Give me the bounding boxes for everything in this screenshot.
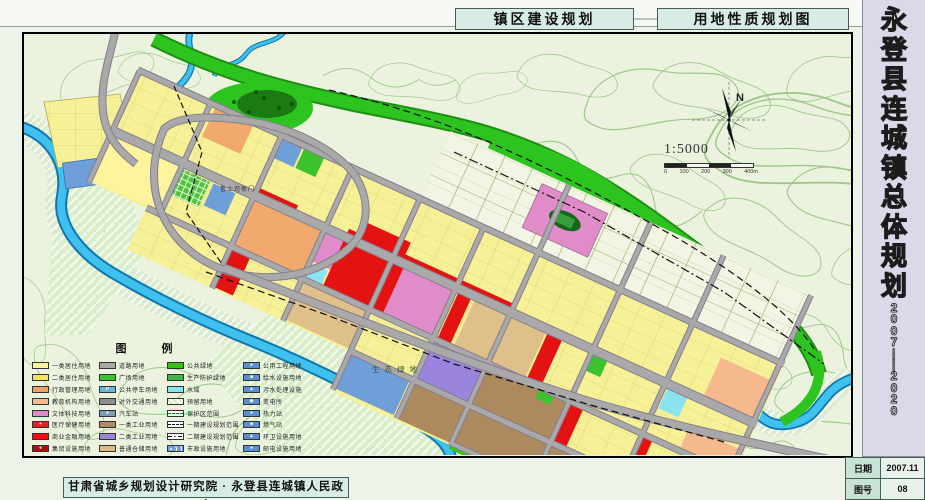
legend-item: ●汽车站 bbox=[99, 407, 167, 419]
legend-swatch bbox=[32, 362, 49, 369]
legend-label: 文体科技用地 bbox=[52, 409, 91, 418]
legend-item: 生产防护绿地 bbox=[167, 372, 243, 384]
legend-item: ▲环卫设施用地 bbox=[243, 431, 329, 443]
legend-label: 行政管理用地 bbox=[52, 385, 91, 394]
legend-item: 二期建设规划范围 bbox=[167, 431, 243, 443]
sidebar-char: 镇 bbox=[863, 154, 925, 184]
scale-tick: 100 bbox=[679, 169, 688, 175]
legend-item: ●集贸设施用地 bbox=[32, 443, 99, 455]
sidebar-char: 永 bbox=[863, 6, 925, 36]
scale-tick: 200 bbox=[701, 169, 710, 175]
legend-swatch bbox=[32, 398, 49, 405]
legend-item: 保护区范围 bbox=[167, 407, 243, 419]
legend-label: 公用工程用地 bbox=[263, 361, 302, 370]
legend-swatch bbox=[99, 433, 116, 440]
legend-label: 公共绿地 bbox=[187, 361, 213, 370]
legend-label: 村镇建设用地范围 bbox=[263, 456, 315, 458]
legend-swatch bbox=[167, 386, 184, 393]
legend-label: 水域 bbox=[187, 385, 200, 394]
legend-swatch: ● bbox=[32, 445, 49, 452]
legend-item: ▲污水处理设施 bbox=[243, 384, 329, 396]
legend-swatch bbox=[243, 457, 260, 458]
eco-green-label: 生态绿地 bbox=[372, 364, 422, 375]
title-connector bbox=[632, 18, 657, 20]
legend-swatch bbox=[99, 374, 116, 381]
legend-swatch bbox=[167, 362, 184, 369]
legend-swatch: ● bbox=[243, 410, 260, 417]
sidebar-char: — bbox=[888, 335, 899, 397]
legend-swatch: ● bbox=[99, 410, 116, 417]
sidebar-period: 2007——2020 bbox=[863, 303, 925, 417]
sidebar-char: 城 bbox=[863, 124, 925, 154]
legend-title: 图 例 bbox=[62, 340, 242, 356]
legend-item: 村镇建设用地范围 bbox=[243, 454, 329, 458]
legend-label: 教育机构用地 bbox=[52, 397, 91, 406]
legend-item: ●公用工程用地 bbox=[243, 360, 329, 372]
scale: 1:5000 0100200300400m bbox=[664, 142, 774, 175]
legend-swatch: + bbox=[32, 421, 49, 428]
legend-swatch bbox=[32, 386, 49, 393]
legend-swatch: ■ bbox=[243, 421, 260, 428]
legend-item: ●热力站 bbox=[243, 407, 329, 419]
legend-label: 一类居住用地 bbox=[52, 361, 91, 370]
legend-column: 一类居住用地二类居住用地行政管理用地教育机构用地文体科技用地+医疗保健用地商业金… bbox=[32, 360, 99, 458]
legend-label: 广场用地 bbox=[119, 373, 145, 382]
sidebar-char: 总 bbox=[863, 183, 925, 213]
sidebar-char: 0 bbox=[863, 406, 925, 417]
legend-label: 变电所 bbox=[263, 397, 283, 406]
scale-tick: 300 bbox=[723, 169, 732, 175]
legend-swatch bbox=[167, 433, 184, 440]
legend-label: 保护区范围 bbox=[187, 409, 220, 418]
sidebar-char: 规 bbox=[863, 242, 925, 272]
legend-label: 集贸设施用地 bbox=[52, 444, 91, 453]
landmark-label: 鲁土司衙门 bbox=[220, 184, 255, 193]
legend-swatch bbox=[167, 421, 184, 428]
legend-item: 教育机构用地 bbox=[32, 395, 99, 407]
sidebar-char: 登 bbox=[863, 36, 925, 66]
legend-item: 普通仓储用地 bbox=[99, 443, 167, 455]
legend-item: 预留用地 bbox=[167, 395, 243, 407]
legend-swatch: ▲ bbox=[243, 386, 260, 393]
legend-item: 道路用地 bbox=[99, 360, 167, 372]
scale-bar bbox=[664, 163, 754, 168]
legend-swatch: ◆ bbox=[243, 398, 260, 405]
legend-item: 公共绿地 bbox=[167, 360, 243, 372]
compass-north-label: N bbox=[736, 92, 744, 104]
legend-label: 燃气站 bbox=[263, 420, 283, 429]
scale-tick: 0 bbox=[664, 169, 667, 175]
legend-item: 一类居住用地 bbox=[32, 360, 99, 372]
legend-label: 一类工业用地 bbox=[119, 420, 158, 429]
legend-item: 一类工业用地 bbox=[99, 419, 167, 431]
legend-item: 文体科技用地 bbox=[32, 407, 99, 419]
scale-tick: 400m bbox=[744, 169, 758, 175]
legend-label: 生产防护绿地 bbox=[187, 373, 226, 382]
sidebar-char: 体 bbox=[863, 213, 925, 243]
legend-label: 道路用地 bbox=[119, 361, 145, 370]
legend-label: 二类居住用地 bbox=[52, 373, 91, 382]
legend-item: 对外交通用地 bbox=[99, 395, 167, 407]
legend-swatch bbox=[32, 433, 49, 440]
legend-label: 普通仓储用地 bbox=[119, 444, 158, 453]
legend-swatch bbox=[32, 410, 49, 417]
legend-swatch bbox=[167, 398, 184, 405]
map-canvas: N 1:5000 0100200300400m 生态绿地 鲁土司衙门 图 例 一… bbox=[22, 32, 853, 458]
legend: 图 例 一类居住用地二类居住用地行政管理用地教育机构用地文体科技用地+医疗保健用… bbox=[32, 340, 332, 458]
legend-columns: 一类居住用地二类居住用地行政管理用地教育机构用地文体科技用地+医疗保健用地商业金… bbox=[32, 360, 332, 458]
legend-label: 一期建设规划范围 bbox=[187, 420, 239, 429]
date-value: 2007.11 bbox=[881, 458, 925, 479]
sheet-number-value: 08 bbox=[881, 479, 925, 500]
legend-item: 广场用地 bbox=[99, 372, 167, 384]
sidebar-char: 连 bbox=[863, 95, 925, 125]
legend-swatch bbox=[99, 398, 116, 405]
legend-swatch bbox=[167, 445, 184, 452]
sidebar-char: 划 bbox=[863, 272, 925, 302]
scale-ratio: 1:5000 bbox=[664, 142, 774, 158]
legend-label: 医疗保健用地 bbox=[52, 420, 91, 429]
sheet-number-label: 图号 bbox=[846, 479, 881, 500]
legend-swatch bbox=[99, 362, 116, 369]
legend-item: ■燃气站 bbox=[243, 419, 329, 431]
legend-label: 公共停车场地 bbox=[119, 385, 158, 394]
legend-swatch bbox=[167, 410, 184, 417]
title-right: 用地性质规划图 bbox=[657, 8, 849, 30]
title-left: 镇区建设规划 bbox=[455, 8, 634, 30]
legend-label: 商业金融用地 bbox=[52, 432, 91, 441]
legend-item: 水域 bbox=[167, 384, 243, 396]
legend-label: 对外交通用地 bbox=[119, 397, 158, 406]
legend-label: 汽车站 bbox=[119, 409, 139, 418]
plan-sheet: 镇区建设规划 用地性质规划图 bbox=[0, 0, 925, 500]
sidebar-title: 永登县连城镇总体规划 bbox=[863, 6, 925, 301]
legend-item: P公共停车场地 bbox=[99, 384, 167, 396]
legend-swatch: ● bbox=[243, 445, 260, 452]
legend-item: 一期建设规划范围 bbox=[167, 419, 243, 431]
legend-item: ◆变电所 bbox=[243, 395, 329, 407]
legend-column: 道路用地广场用地P公共停车场地对外交通用地●汽车站一类工业用地二类工业用地普通仓… bbox=[99, 360, 167, 458]
legend-label: 环卫设施用地 bbox=[263, 432, 302, 441]
sidebar: 永登县连城镇总体规划 2007——2020 bbox=[862, 0, 925, 457]
legend-label: 二期建设规划范围 bbox=[187, 432, 239, 441]
footer-credit: 甘肃省城乡规划设计研究院 · 永登县连城镇人民政府 bbox=[63, 477, 349, 498]
legend-swatch bbox=[99, 445, 116, 452]
legend-label: 预留用地 bbox=[187, 397, 213, 406]
legend-swatch: P bbox=[99, 386, 116, 393]
legend-swatch bbox=[167, 374, 184, 381]
legend-label: 邮电设施用地 bbox=[263, 444, 302, 453]
legend-swatch bbox=[32, 374, 49, 381]
legend-item: ●邮电设施用地 bbox=[243, 443, 329, 455]
scale-ticks: 0100200300400m bbox=[664, 169, 758, 175]
date-label: 日期 bbox=[846, 458, 881, 479]
sheet-info-table: 日期 2007.11 图号 08 bbox=[845, 457, 925, 500]
legend-item: 二类居住用地 bbox=[32, 372, 99, 384]
legend-swatch bbox=[99, 421, 116, 428]
legend-item: 商业金融用地 bbox=[32, 431, 99, 443]
legend-item: ■给水设施用地 bbox=[243, 372, 329, 384]
legend-item: +医疗保健用地 bbox=[32, 419, 99, 431]
legend-label: 给水设施用地 bbox=[263, 373, 302, 382]
legend-swatch: ● bbox=[243, 362, 260, 369]
legend-item: 市政设施用地 bbox=[167, 443, 243, 455]
legend-column: ●公用工程用地■给水设施用地▲污水处理设施◆变电所●热力站■燃气站▲环卫设施用地… bbox=[243, 360, 329, 458]
legend-item: 二类工业用地 bbox=[99, 431, 167, 443]
legend-swatch: ▲ bbox=[243, 433, 260, 440]
legend-item: 行政管理用地 bbox=[32, 384, 99, 396]
legend-label: 二类工业用地 bbox=[119, 432, 158, 441]
legend-label: 污水处理设施 bbox=[263, 385, 302, 394]
legend-label: 市政设施用地 bbox=[187, 444, 226, 453]
sidebar-char: 县 bbox=[863, 65, 925, 95]
legend-column: 公共绿地生产防护绿地水域预留用地保护区范围一期建设规划范围二期建设规划范围市政设… bbox=[167, 360, 243, 458]
legend-label: 热力站 bbox=[263, 409, 283, 418]
legend-swatch: ■ bbox=[243, 374, 260, 381]
